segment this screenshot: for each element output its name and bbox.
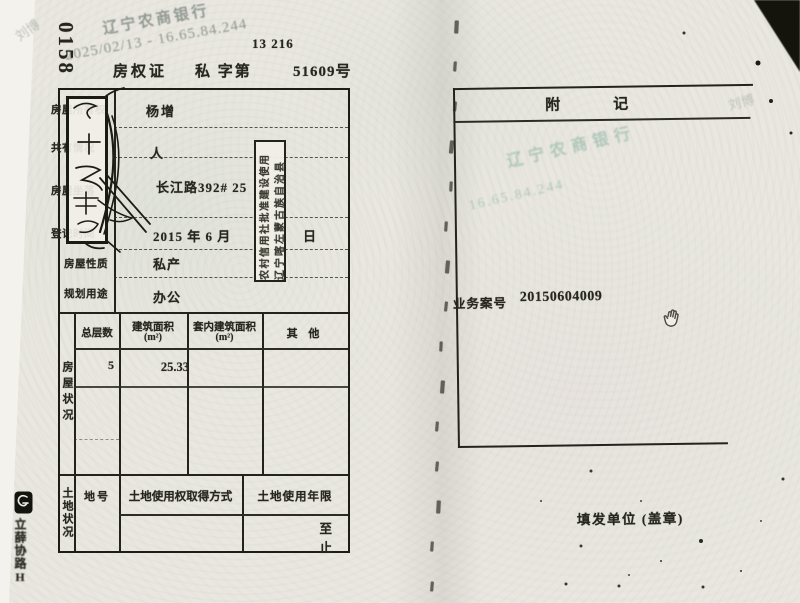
- case-number-value: 20150604009: [520, 289, 603, 306]
- annex-top-border: [453, 84, 753, 90]
- annex-title-char1: 附: [545, 94, 560, 115]
- annex-header-underline: [453, 117, 750, 123]
- margin-vertical-marks: 立薛协路H: [12, 518, 29, 590]
- annex-title-char2: 记: [613, 93, 628, 114]
- handwritten-annotation-box: [66, 96, 108, 244]
- stamp-text-line2: 辽宁喀左蒙古族自治县: [271, 142, 286, 280]
- annex-panel: 附 记 业务案号 20150604009 填发单位 (盖章): [0, 0, 800, 603]
- sideways-authority-stamp: 农村信用社批准建设使用 辽宁喀左蒙古族自治县: [254, 140, 286, 282]
- annex-left-border: [453, 88, 460, 448]
- scanned-certificate-page: 刘博 刘博 辽宁农商银行 2025/02/13 - 16.65.84.244 辽…: [0, 0, 800, 603]
- case-number-label: 业务案号: [453, 292, 507, 312]
- margin-logo: [14, 491, 34, 515]
- stamp-text-line1: 农村信用社批准建设使用: [256, 142, 271, 280]
- issuer-label: 填发单位 (盖章): [577, 507, 684, 528]
- scan-speckles: [0, 0, 2, 2]
- hand-cursor-icon: [658, 303, 689, 334]
- annex-bottom-border: [458, 442, 728, 448]
